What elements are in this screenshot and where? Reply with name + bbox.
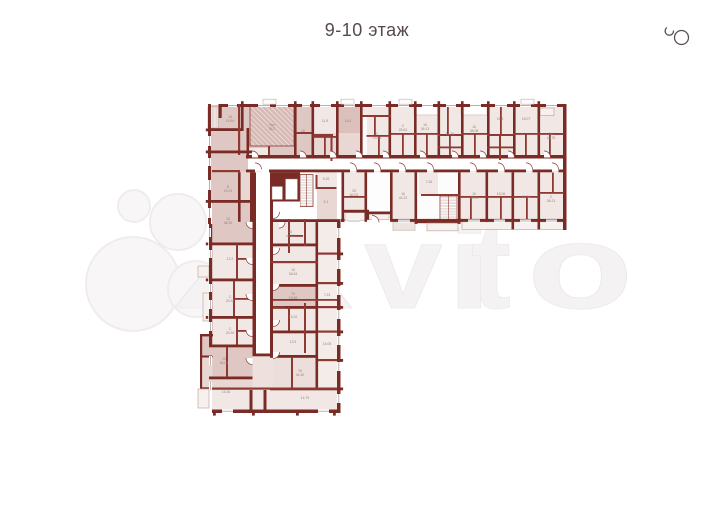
- svg-text:36.13: 36.13: [421, 127, 430, 131]
- svg-text:11.9: 11.9: [322, 119, 328, 123]
- svg-text:14.79: 14.79: [301, 396, 310, 400]
- svg-text:63.03: 63.03: [220, 361, 229, 365]
- svg-text:15.06: 15.06: [497, 192, 506, 196]
- svg-text:13.3: 13.3: [290, 340, 297, 344]
- svg-text:15.03: 15.03: [224, 189, 233, 193]
- svg-text:36.21: 36.21: [547, 199, 556, 203]
- svg-text:44.10: 44.10: [286, 234, 295, 238]
- svg-text:43.78: 43.78: [547, 136, 556, 140]
- svg-text:25.32: 25.32: [226, 299, 235, 303]
- svg-text:23.65: 23.65: [373, 136, 382, 140]
- svg-text:44.22: 44.22: [399, 196, 408, 200]
- svg-text:15.36: 15.36: [222, 390, 231, 394]
- svg-text:9-10 этаж: 9-10 этаж: [325, 20, 409, 40]
- svg-text:36.2: 36.2: [269, 127, 276, 131]
- svg-text:36.64: 36.64: [289, 272, 298, 276]
- svg-text:8.1: 8.1: [324, 200, 329, 204]
- svg-text:16.4: 16.4: [345, 119, 352, 123]
- svg-text:38.08: 38.08: [470, 129, 479, 133]
- svg-text:15.07: 15.07: [522, 117, 531, 121]
- svg-text:7.23: 7.23: [324, 293, 331, 297]
- svg-text:44.30: 44.30: [296, 373, 305, 377]
- svg-text:12.2: 12.2: [227, 257, 234, 261]
- svg-text:25.61: 25.61: [399, 128, 408, 132]
- svg-text:44.02: 44.02: [470, 196, 479, 200]
- svg-text:15.05: 15.05: [323, 342, 332, 346]
- svg-text:2К: 2К: [301, 129, 305, 133]
- svg-text:15.84: 15.84: [226, 119, 235, 123]
- svg-text:5.26: 5.26: [323, 177, 330, 181]
- svg-text:25.30: 25.30: [226, 331, 235, 335]
- svg-text:16.3: 16.3: [497, 117, 504, 121]
- svg-text:15.02: 15.02: [289, 315, 298, 319]
- svg-text:14.36: 14.36: [446, 132, 455, 136]
- svg-text:16.65: 16.65: [289, 296, 298, 300]
- svg-text:7.26: 7.26: [426, 180, 433, 184]
- svg-text:15.34: 15.34: [522, 195, 531, 199]
- svg-text:38.30: 38.30: [224, 221, 233, 225]
- svg-text:60.03: 60.03: [350, 193, 359, 197]
